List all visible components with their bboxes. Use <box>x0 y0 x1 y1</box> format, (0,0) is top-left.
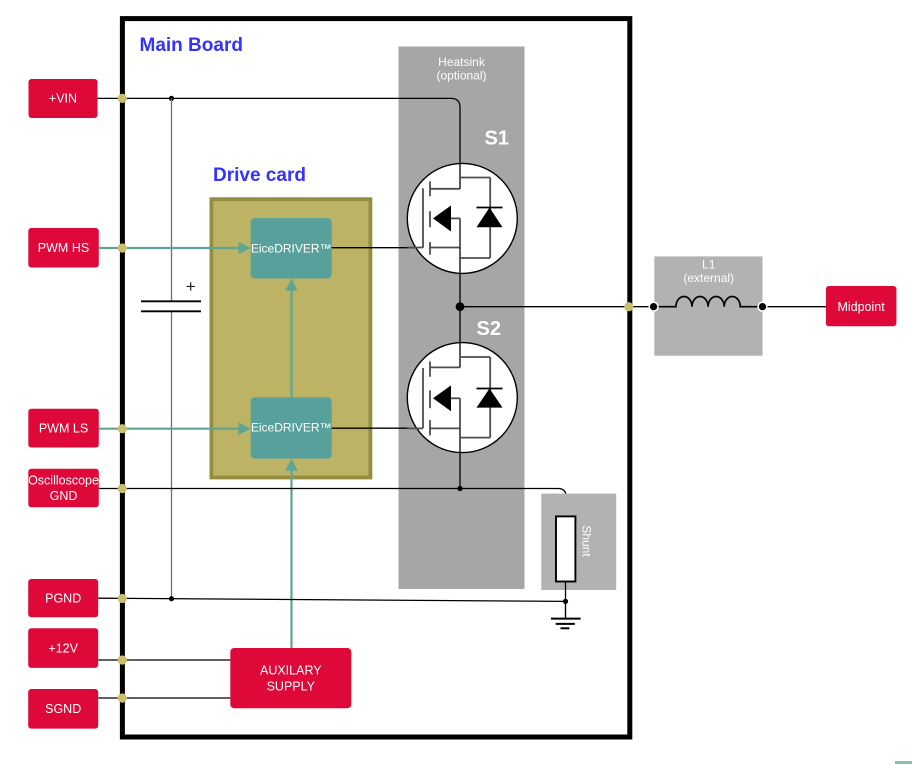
svg-text:L1: L1 <box>702 257 716 271</box>
svg-text:SUPPLY: SUPPLY <box>267 680 316 694</box>
svg-text:GND: GND <box>50 489 78 503</box>
svg-text:EiceDRIVER™: EiceDRIVER™ <box>251 420 332 434</box>
svg-text:(external): (external) <box>683 271 734 285</box>
svg-text:Main Board: Main Board <box>140 35 243 56</box>
svg-text:Shunt: Shunt <box>580 525 594 557</box>
svg-text:AUXILARY: AUXILARY <box>260 664 322 678</box>
svg-text:S1: S1 <box>485 127 509 149</box>
svg-text:PWM LS: PWM LS <box>39 421 88 435</box>
svg-text:Midpoint: Midpoint <box>837 300 885 314</box>
svg-text:+: + <box>186 277 196 296</box>
svg-text:SGND: SGND <box>45 702 81 716</box>
svg-text:S2: S2 <box>477 318 501 340</box>
svg-text:Oscilloscope: Oscilloscope <box>28 474 99 488</box>
svg-text:(optional): (optional) <box>436 68 486 82</box>
svg-text:Drive card: Drive card <box>213 165 306 186</box>
svg-text:PGND: PGND <box>45 592 81 606</box>
svg-text:+12V: +12V <box>48 642 78 656</box>
svg-text:PWM HS: PWM HS <box>38 241 89 255</box>
svg-text:EiceDRIVER™: EiceDRIVER™ <box>251 241 332 255</box>
svg-text:Heatsink: Heatsink <box>438 55 486 69</box>
svg-text:+VIN: +VIN <box>49 92 77 106</box>
